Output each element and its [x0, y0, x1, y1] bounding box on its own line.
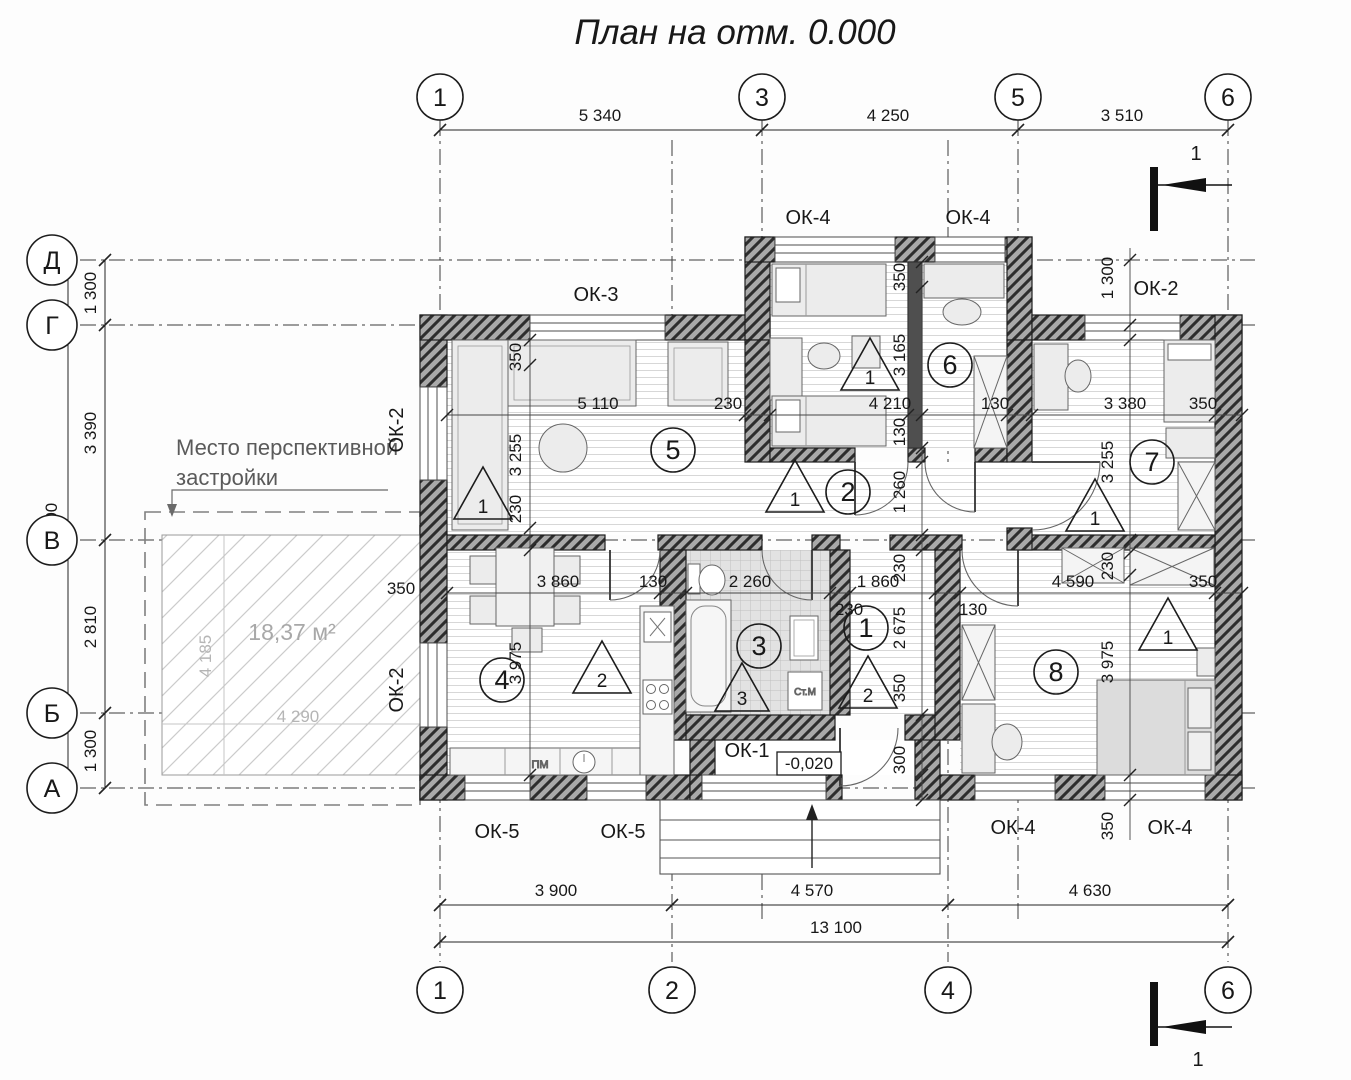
window-ok4-top-left	[775, 237, 895, 262]
terrace-area: 18,37 м² 4 185 4 290 Место перспективной…	[145, 435, 420, 805]
dim-bottom-3: 4 630	[1069, 881, 1112, 900]
dim-bottom-2: 4 570	[791, 881, 834, 900]
window-ok1-porch	[702, 775, 826, 800]
floor-mark-3: 3	[737, 689, 748, 710]
dim-wall-offset: 350	[387, 579, 415, 598]
label-ok4: ОК-4	[946, 207, 991, 229]
stove	[643, 680, 672, 714]
page-title: План на отм. 0.000	[574, 13, 896, 52]
dim-partition-130: 130	[981, 394, 1009, 413]
label-ok3: ОК-3	[574, 284, 619, 306]
level-value: -0,020	[785, 754, 833, 773]
dim-bottom-total: 13 100	[810, 918, 862, 937]
dim-col-center-6: 2 675	[890, 607, 909, 650]
chair	[554, 596, 580, 624]
axis-left-g: Г	[45, 312, 59, 340]
dim-top-1: 5 340	[579, 106, 622, 125]
room-number-3: 3	[751, 631, 766, 661]
label-ok2: ОК-2	[386, 668, 408, 713]
floor-plan-page: 18,37 м² 4 185 4 290 Место перспективной…	[0, 0, 1351, 1080]
terrace-height-dim: 4 185	[196, 635, 215, 678]
label-ok5: ОК-5	[475, 821, 520, 843]
axis-left-a: А	[44, 775, 61, 803]
note-leader-line	[172, 490, 388, 506]
level-mark: -0,020	[777, 752, 841, 775]
axis-left-d: Д	[44, 247, 61, 275]
axis-left-v: В	[44, 527, 61, 555]
dim-col-right-5: 350	[1098, 812, 1117, 840]
dim-wall-130: 130	[639, 572, 667, 591]
dim-left-4: 1 300	[81, 730, 100, 773]
nightstand	[1197, 648, 1215, 676]
terrace-area-label: 18,37 м²	[248, 619, 336, 645]
floor-mark-2: 2	[597, 671, 608, 692]
dim-col-center-7: 350	[890, 674, 909, 702]
dim-top-2: 4 250	[867, 106, 910, 125]
toilet-bowl	[699, 565, 725, 595]
note-leader-arrow	[167, 504, 177, 517]
label-ok4: ОК-4	[786, 207, 831, 229]
floor-mark-1: 1	[790, 490, 801, 511]
room-number-6: 6	[942, 350, 957, 380]
dim-col-center-5: 230	[890, 554, 909, 582]
chair	[943, 299, 981, 325]
dim-col-center-1: 350	[890, 263, 909, 291]
dim-130-sub: 130	[959, 600, 987, 619]
dishwasher-label: ПМ	[531, 759, 548, 771]
dim-wall-230: 230	[714, 394, 742, 413]
room-number-7: 7	[1144, 447, 1159, 477]
dim-room7-width: 3 380	[1104, 394, 1147, 413]
section-number: 1	[1192, 1049, 1203, 1071]
dim-col-center-3: 130	[890, 418, 909, 446]
dim-bedroom2-width: 4 210	[869, 394, 912, 413]
axis-top-1: 1	[433, 84, 447, 112]
dim-left-1: 1 300	[81, 272, 100, 315]
dim-col-center-8: 300	[890, 746, 909, 774]
floor-mark-1: 1	[1090, 509, 1101, 530]
floor-mark-1: 1	[478, 497, 489, 518]
chair	[470, 556, 496, 584]
dim-top-3: 3 510	[1101, 106, 1144, 125]
label-ok2: ОК-2	[386, 408, 408, 453]
room-number-8: 8	[1048, 657, 1063, 687]
label-ok5: ОК-5	[601, 821, 646, 843]
chair	[992, 724, 1022, 760]
window-ok4-bottom-right	[1105, 775, 1205, 800]
axis-left-b: Б	[44, 700, 60, 728]
dim-left-3: 2 810	[81, 606, 100, 649]
section-arrow	[1162, 178, 1206, 192]
desk	[924, 264, 1004, 298]
dim-col-right-4: 3 975	[1098, 641, 1117, 684]
section-number: 1	[1190, 143, 1201, 165]
axis-bottom-6: 6	[1221, 977, 1235, 1005]
window-ok4-top-right	[935, 237, 1005, 262]
dim-wall-350b: 350	[1189, 572, 1217, 591]
cabinet	[1166, 428, 1215, 458]
dim-room8-width: 4 590	[1052, 572, 1095, 591]
label-ok1: ОК-1	[725, 740, 770, 762]
dim-left-2: 3 390	[81, 412, 100, 455]
axis-bottom-4: 4	[941, 977, 955, 1005]
chair	[470, 596, 496, 624]
desk	[770, 338, 802, 400]
room-number-1: 1	[858, 613, 873, 643]
desk	[962, 704, 995, 773]
label-ok4: ОК-4	[1148, 817, 1193, 839]
section-mark-top: 1	[1150, 143, 1232, 231]
dim-col-right-3: 230	[1098, 552, 1117, 580]
floor-mark-1: 1	[1163, 628, 1174, 649]
chair	[1065, 360, 1091, 392]
room-number-4: 4	[494, 665, 509, 695]
floor-plan-drawing: 18,37 м² 4 185 4 290 Место перспективной…	[0, 0, 1351, 1080]
axis-bottom-1: 1	[433, 977, 447, 1005]
label-ok4: ОК-4	[991, 817, 1036, 839]
dim-kitchen-width: 3 860	[537, 572, 580, 591]
window-ok5-left	[465, 775, 530, 800]
axis-top-6: 6	[1221, 84, 1235, 112]
window-ok2-left-lower	[420, 643, 447, 727]
entrance-stairs	[660, 800, 940, 874]
axis-top-5: 5	[1011, 84, 1025, 112]
chair	[808, 343, 840, 369]
room-number-5: 5	[665, 435, 680, 465]
dim-bathroom-width: 2 260	[729, 572, 772, 591]
bedroom2-furniture	[770, 264, 886, 446]
terrace-width-dim: 4 290	[277, 707, 320, 726]
dim-col-right-1: 1 300	[1098, 257, 1117, 300]
round-table	[539, 424, 587, 472]
window-ok2-left-upper	[420, 387, 447, 480]
axis-top-3: 3	[755, 84, 769, 112]
dim-col-center-2: 3 165	[890, 334, 909, 377]
section-arrow	[1162, 1020, 1206, 1034]
note-line-1: Место перспективной	[176, 435, 398, 460]
dim-wall-350: 350	[1189, 394, 1217, 413]
dim-col-left-1: 350	[506, 343, 525, 371]
floor-mark-1: 1	[865, 368, 876, 389]
axis-bottom-2: 2	[665, 977, 679, 1005]
window-ok2-top-right	[1085, 315, 1180, 340]
room-number-2: 2	[840, 477, 855, 507]
washer-label: Ст.М	[794, 687, 816, 698]
dim-col-center-4: 1 260	[890, 471, 909, 514]
window-ok4-bottom-left	[975, 775, 1055, 800]
note-line-2: застройки	[176, 465, 278, 490]
floor-mark-2: 2	[863, 686, 874, 707]
window-ok5-right	[587, 775, 646, 800]
dim-living-width: 5 110	[577, 394, 618, 413]
dim-col-left-2: 3 255	[506, 434, 525, 477]
dim-col-right-2: 3 255	[1098, 441, 1117, 484]
label-ok2: ОК-2	[1134, 278, 1179, 300]
window-ok3	[530, 315, 665, 340]
dim-bottom-1: 3 900	[535, 881, 578, 900]
desk	[1034, 344, 1068, 410]
